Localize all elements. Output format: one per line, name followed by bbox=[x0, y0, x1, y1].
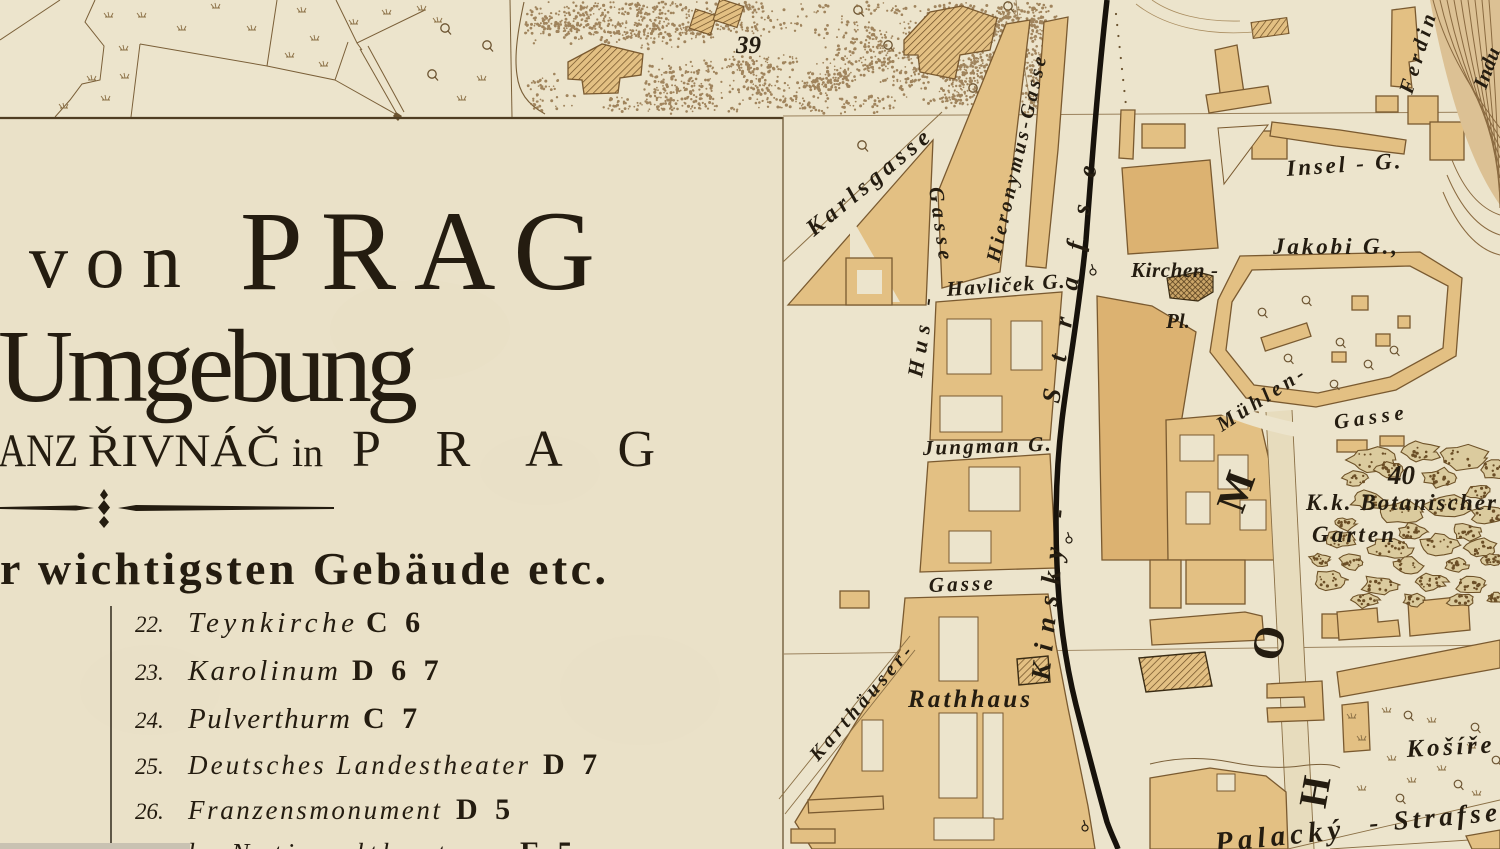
svg-text:40: 40 bbox=[1387, 460, 1416, 490]
svg-text:Jakobi G.,: Jakobi G., bbox=[1272, 234, 1397, 259]
svg-text:r wichtigsten Gebäude etc.: r wichtigsten Gebäude etc. bbox=[0, 543, 606, 594]
svg-text:Jungman G.: Jungman G. bbox=[921, 432, 1051, 460]
svg-text:E 5: E 5 bbox=[520, 836, 578, 849]
svg-text:26.: 26. bbox=[135, 799, 164, 824]
svg-text:C 7: C 7 bbox=[363, 702, 422, 735]
svg-text:D 5: D 5 bbox=[456, 793, 515, 826]
svg-text:24.: 24. bbox=[135, 708, 164, 733]
svg-text:Deutsches Landestheater: Deutsches Landestheater bbox=[187, 750, 528, 780]
svg-text:25.: 25. bbox=[135, 754, 164, 779]
svg-text:D 6 7: D 6 7 bbox=[352, 654, 444, 687]
svg-text:von: von bbox=[29, 217, 181, 304]
svg-text:C 6: C 6 bbox=[366, 606, 425, 639]
svg-text:PRAG: PRAG bbox=[240, 189, 595, 314]
svg-text:Pl.: Pl. bbox=[1165, 309, 1190, 333]
svg-text:ANZ: ANZ bbox=[0, 425, 78, 477]
svg-text:Teynkirche: Teynkirche bbox=[188, 607, 354, 639]
svg-text:Garten: Garten bbox=[1312, 522, 1394, 547]
svg-text:D 7: D 7 bbox=[543, 748, 602, 781]
svg-text:ŘIVNÁČ: ŘIVNÁČ bbox=[88, 425, 280, 477]
svg-text:Pulverthurm: Pulverthurm bbox=[187, 703, 350, 735]
svg-text:23.: 23. bbox=[135, 660, 164, 685]
svg-text:22.: 22. bbox=[135, 612, 164, 637]
svg-text:Umgebung: Umgebung bbox=[0, 309, 418, 424]
svg-text:39: 39 bbox=[735, 32, 762, 59]
svg-text:Gasse: Gasse bbox=[928, 571, 993, 597]
svg-text:in: in bbox=[292, 430, 323, 475]
svg-text:K.k. Botanischer: K.k. Botanischer bbox=[1305, 490, 1497, 515]
svg-text:Kirchen -: Kirchen - bbox=[1130, 258, 1218, 282]
svg-text:Franzensmonument: Franzensmonument bbox=[187, 795, 441, 825]
